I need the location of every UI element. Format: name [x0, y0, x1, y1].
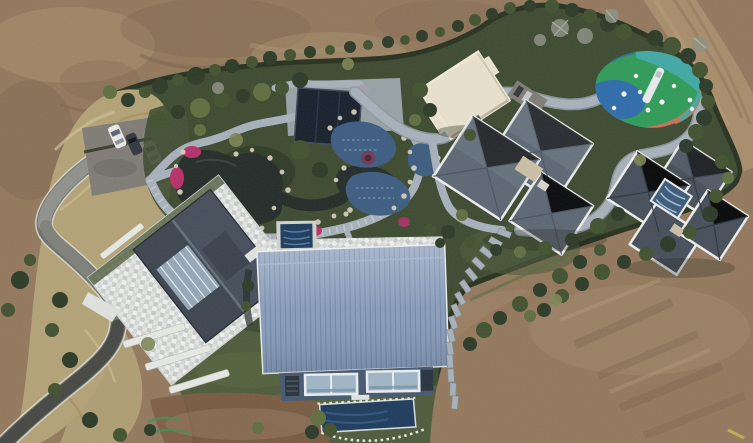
film-grain-overlay: [0, 0, 753, 443]
aerial-photo: Aerial drone view of a landscaped estate…: [0, 0, 753, 443]
aerial-photo-stage: Aerial drone view of a landscaped estate…: [0, 0, 753, 443]
